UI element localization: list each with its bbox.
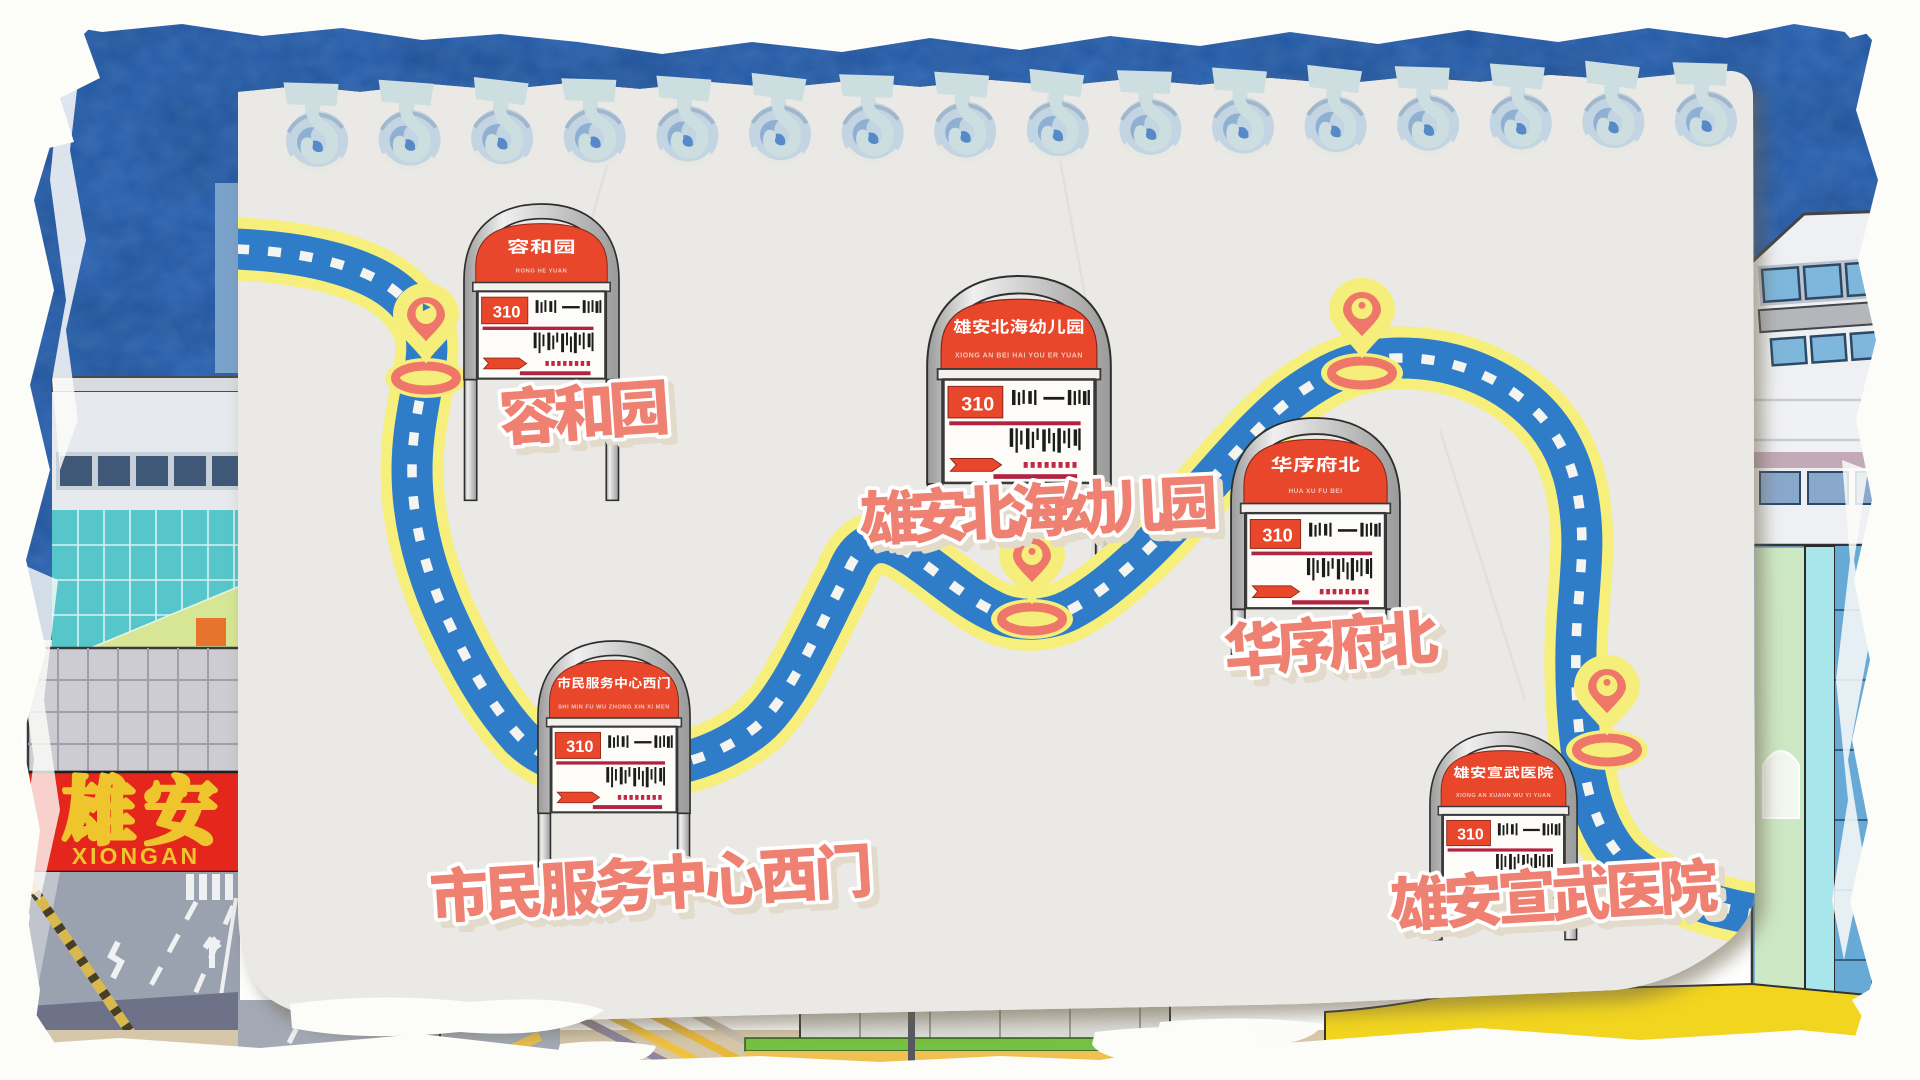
svg-text:XIONG AN BEI HAI YOU ER YUAN: XIONG AN BEI HAI YOU ER YUAN bbox=[955, 352, 1083, 359]
svg-text:310: 310 bbox=[1457, 827, 1484, 844]
svg-text:RONG HE YUAN: RONG HE YUAN bbox=[516, 269, 567, 275]
svg-text:HUA XU FU BEI: HUA XU FU BEI bbox=[1288, 488, 1342, 495]
svg-text:XIONG AN XUANN WU YI YUAN: XIONG AN XUANN WU YI YUAN bbox=[1456, 793, 1551, 799]
svg-text:310: 310 bbox=[961, 393, 994, 415]
svg-text:310: 310 bbox=[566, 738, 593, 756]
svg-text:SHI MIN FU WU ZHONG XIN XI MEN: SHI MIN FU WU ZHONG XIN XI MEN bbox=[558, 704, 670, 710]
svg-text:310: 310 bbox=[1262, 525, 1292, 545]
svg-text:310: 310 bbox=[493, 302, 521, 321]
svg-text:XIONGAN: XIONGAN bbox=[72, 843, 200, 869]
